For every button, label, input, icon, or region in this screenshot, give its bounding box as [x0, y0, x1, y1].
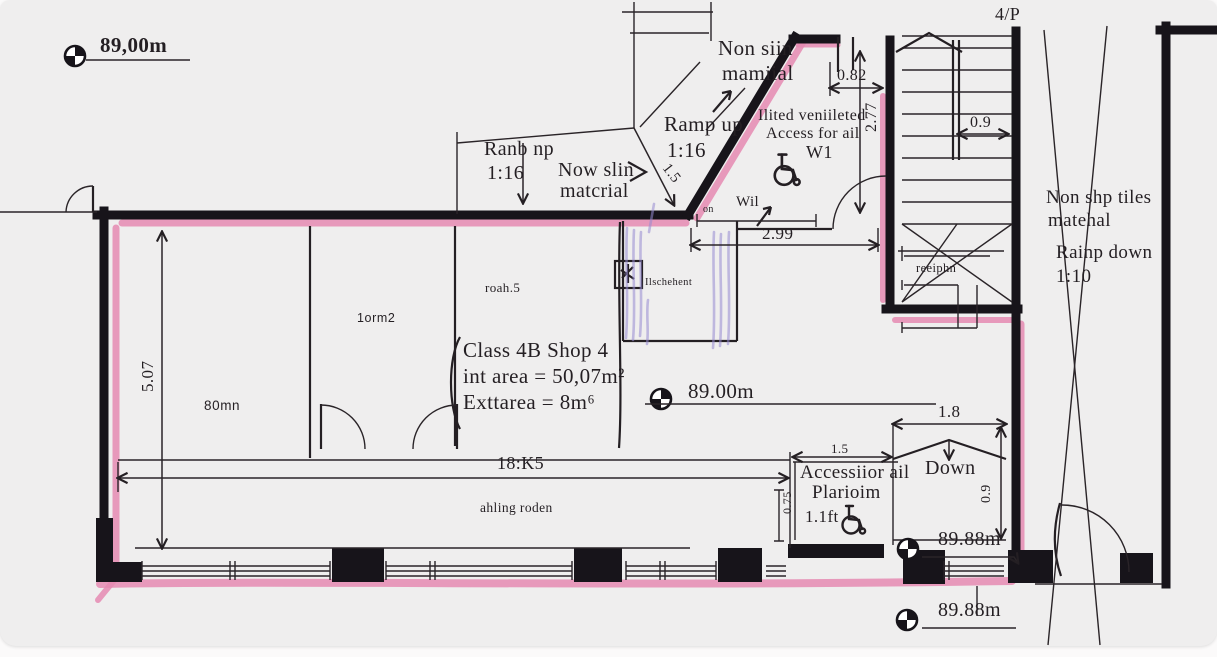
benchmark-icon — [651, 389, 671, 409]
on-label: on — [703, 204, 714, 215]
dim-18: 1.8 — [938, 402, 960, 421]
reception-label: reeiphn — [916, 261, 957, 275]
shop-label-line2: int area = 50,07m² — [463, 364, 625, 388]
ramp-left-label-line1: Ranb np — [484, 138, 554, 160]
wil-label: Wil — [736, 194, 759, 210]
non-slip-material-mid-line1: Now slin — [558, 159, 634, 181]
dim-09-top: 0.9 — [970, 114, 991, 131]
non-slip-tiles-label-line1: Non shp tiles — [1046, 187, 1151, 208]
sheet-ref-label: 4/P — [995, 4, 1020, 24]
dim-075: 0.75 — [780, 491, 794, 514]
down-label: Down — [925, 457, 976, 479]
dim-507: 5.07 — [138, 361, 157, 392]
outdoor-ramp-lines — [1044, 26, 1107, 645]
ramp-left-label-line2: 1:16 — [487, 162, 524, 184]
accessible-route-highlight — [98, 42, 1021, 600]
dim-09-stair: 0.9 — [979, 484, 994, 503]
room-area-label-1: roah.5 — [485, 280, 520, 295]
room-area-label-2: 1orm2 — [357, 311, 395, 325]
non-slip-material-top-line1: Non siin — [718, 36, 793, 60]
ramp-down-label-line2: 1:10 — [1056, 266, 1091, 287]
non-slip-material-top-line2: mamiial — [722, 61, 794, 85]
shop-label-line3: Exttarea = 8m⁶ — [463, 390, 595, 414]
accessible-wc-label-line2: Access for ail — [766, 125, 860, 142]
level-label-center: 89.00m — [688, 379, 754, 403]
dim-15-platform: 1.5 — [831, 441, 848, 456]
fixture-label: Ilschehent — [645, 277, 692, 288]
exterior-walls — [97, 26, 1217, 584]
floor-plan-canvas: 89,00m 89.00m 89.88m 89.88m 4/P Non siin… — [0, 0, 1217, 657]
wheelchair-icon — [843, 506, 866, 534]
wheelchair-icon — [775, 155, 800, 185]
platform-label-line3: 1.1ft — [805, 507, 839, 526]
benchmark-icon — [65, 46, 85, 66]
ramp-down-label-line1: Rainp down — [1056, 242, 1152, 263]
level-label-top-left: 89,00m — [100, 33, 167, 57]
floor-plan-sheet: 89,00m 89.00m 89.88m 89.88m 4/P Non siin… — [0, 0, 1217, 657]
dim-082: 0.82 — [837, 67, 867, 84]
awning-label: ahling roden — [480, 500, 553, 515]
non-slip-tiles-label-line2: matehal — [1048, 210, 1111, 231]
room-area-label-3: 80mn — [204, 398, 240, 413]
platform-label-line2: Plarioim — [812, 482, 881, 503]
storefront-glazing — [142, 561, 1004, 580]
accessible-wc-label-line3: W1 — [806, 142, 833, 162]
level-label-entry: 89.88m — [938, 599, 1001, 621]
ramp-up-label-line2: 1:16 — [667, 138, 706, 162]
dim-18k5: 18:K5 — [497, 453, 544, 473]
dim-277: 2.77 — [863, 102, 880, 132]
benchmark-icon — [898, 539, 918, 559]
level-label-platform: 89.88m — [938, 528, 1001, 550]
floor-plan-card: 89,00m 89.00m 89.88m 89.88m 4/P Non siin… — [0, 0, 1217, 646]
ramp-up-label-line1: Ramp up — [664, 112, 743, 136]
benchmark-icon — [897, 610, 917, 630]
accessible-wc-label-line1: Ilited veniileted — [758, 107, 866, 124]
non-slip-material-mid-line2: matcrial — [560, 180, 629, 202]
platform-label-line1: Accessiior ail — [800, 462, 910, 483]
shop-label-line1: Class 4B Shop 4 — [463, 338, 609, 362]
dim-299: 2.99 — [762, 224, 793, 243]
